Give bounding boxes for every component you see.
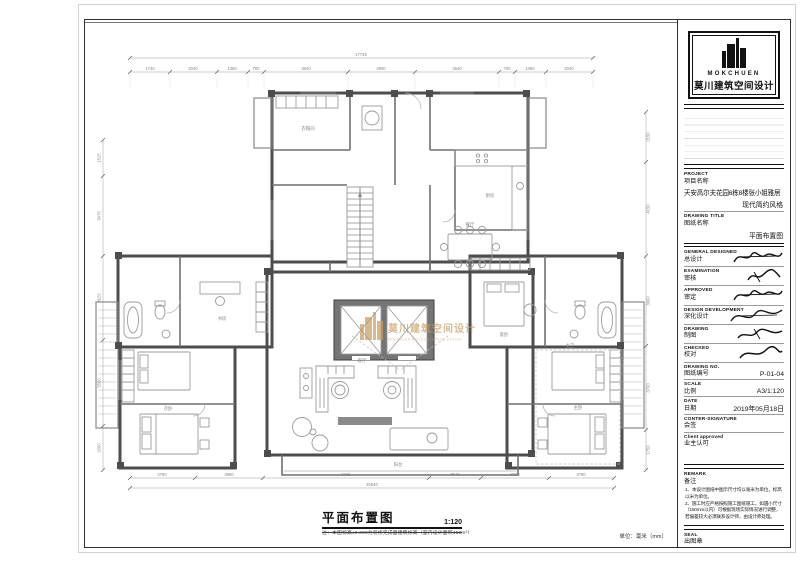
signature <box>730 286 784 304</box>
field-seal: SEAL 出图章 <box>684 531 784 547</box>
svg-text:厨房: 厨房 <box>486 192 495 199</box>
building-logo-icon <box>717 38 751 68</box>
svg-text:餐厅: 餐厅 <box>466 221 475 228</box>
svg-text:主卫: 主卫 <box>566 342 575 348</box>
svg-text:1360: 1360 <box>227 66 237 71</box>
svg-text:3780: 3780 <box>576 472 586 477</box>
svg-text:书房: 书房 <box>218 315 227 322</box>
room-labels: 客厅 餐厅 厨房 阳台 主卧 次卧 书房 客卧 主卫 衣帽间 <box>164 125 583 468</box>
plan-units: 单位：毫米（mm） <box>517 532 667 540</box>
title-block: MOKCHUEN 莫川建筑空间设计 PROJECT 项目名称 天安高尔夫花园6栋… <box>677 20 790 547</box>
plan-scale: 1:120 <box>444 519 462 526</box>
svg-text:主卧: 主卧 <box>574 404 583 411</box>
svg-text:2040: 2040 <box>188 66 198 71</box>
svg-text:1360: 1360 <box>525 66 535 71</box>
svg-text:3900: 3900 <box>646 296 651 306</box>
logo-inner: MOKCHUEN 莫川建筑空间设计 <box>692 35 776 95</box>
divider <box>684 525 784 530</box>
field-general-designed: GENERAL DESIGNED 总设计 <box>684 248 784 266</box>
svg-text:4150: 4150 <box>646 204 651 214</box>
field-drawing-no: DRAWING NO. 图纸编号 P-01-04 <box>684 362 784 379</box>
furniture <box>122 96 622 454</box>
drawing-no-value: P-01-04 <box>760 371 784 378</box>
remark-note-1: 1、本设计图纸中图示尺寸均以毫米为单位，标高以米为单位。 <box>685 487 784 500</box>
divider <box>684 104 784 109</box>
svg-text:1525: 1525 <box>97 153 102 163</box>
exterior-walls <box>118 93 622 468</box>
svg-text:3475: 3475 <box>97 211 102 221</box>
field-date: DATE 日期 2019年05月18日 <box>684 396 784 413</box>
field-counter-signature: CONTER-SIGNATURE 会签 <box>684 414 784 432</box>
field-project: PROJECT 项目名称 天安高尔夫花园6栋8楼张小姐雅居 现代简约风格 <box>684 170 784 211</box>
logo-box: MOKCHUEN 莫川建筑空间设计 <box>688 31 780 99</box>
field-examination: EXAMINATION 审核 <box>684 266 784 285</box>
signature <box>730 248 784 266</box>
field-checked: CHECKED 校对 <box>684 343 784 362</box>
drawing-title-value: 平面布置图 <box>684 228 784 241</box>
svg-text:2000: 2000 <box>97 443 102 453</box>
svg-text:3700: 3700 <box>646 383 651 393</box>
date-value: 2019年05月18日 <box>733 403 784 413</box>
field-design-development: DESIGN DEVELOPMENT 深化设计 <box>684 305 784 324</box>
drawing-sheet: 17725 1740 2040 1360 700 3640 2900 3640 … <box>0 0 800 565</box>
svg-text:阳台: 阳台 <box>394 461 403 468</box>
svg-text:3960: 3960 <box>510 472 520 477</box>
svg-text:1740: 1740 <box>145 66 155 71</box>
divider <box>684 243 784 248</box>
svg-text:3640: 3640 <box>301 66 311 71</box>
divider <box>684 164 784 169</box>
field-drawing: DRAWING 制图 <box>684 324 784 343</box>
svg-text:3045: 3045 <box>450 472 460 477</box>
logo-text-en: MOKCHUEN <box>708 71 761 77</box>
field-remark: REMARK 备注 1、本设计图纸中图示尺寸均以毫米为单位，标高以米为单位。 2… <box>684 470 784 524</box>
field-client-approved: Client approved 业主认可 <box>684 432 784 451</box>
svg-text:MOKCHUEN BUILDING SPACE DESIGN: MOKCHUEN BUILDING SPACE DESIGN <box>388 338 462 342</box>
svg-text:次卧: 次卧 <box>164 405 173 412</box>
signature <box>734 325 784 343</box>
logo-text-cn: 莫川建筑空间设计 <box>694 78 774 92</box>
signature <box>740 267 784 285</box>
ruled-lines <box>684 112 784 162</box>
svg-text:17725: 17725 <box>355 52 367 57</box>
svg-text:衣帽间: 衣帽间 <box>301 125 314 132</box>
plan-title: 平面布置图 <box>322 507 395 526</box>
floor-plan: 17725 1740 2040 1360 700 3640 2900 3640 … <box>85 20 674 544</box>
svg-text:3625: 3625 <box>97 293 102 303</box>
signature <box>734 344 784 362</box>
stairs <box>347 187 373 267</box>
svg-text:3640: 3640 <box>452 66 462 71</box>
remark-notes: 1、本设计图纸中图示尺寸均以毫米为单位，标高以米为单位。 2、施工时应严格按照施… <box>685 487 784 520</box>
svg-text:700: 700 <box>253 66 261 71</box>
svg-text:30540: 30540 <box>366 482 378 487</box>
svg-text:5550: 5550 <box>97 378 102 388</box>
svg-text:700: 700 <box>504 66 512 71</box>
svg-text:2150: 2150 <box>646 132 651 142</box>
svg-text:1750: 1750 <box>646 445 651 455</box>
remark-note-2: 2、施工时应严格按照施工图纸施工，如遇小尺寸（150mm以内）可根据现场实际情况… <box>685 501 784 520</box>
divider <box>684 464 784 469</box>
svg-text:2900: 2900 <box>376 66 386 71</box>
field-drawing-title: DRAWING TITLE 图纸名称 平面布置图 <box>684 211 784 241</box>
scale-value: A3/1:120 <box>757 388 784 395</box>
signature <box>728 306 784 324</box>
wall-piers <box>115 90 624 469</box>
field-approved: APPROVED 审定 <box>684 285 784 304</box>
svg-text:9635: 9635 <box>341 472 351 477</box>
svg-text:客卧: 客卧 <box>500 331 509 338</box>
field-scale: SCALE 比例 A3/1:120 <box>684 379 784 396</box>
svg-text:3960: 3960 <box>224 472 234 477</box>
svg-text:2040: 2040 <box>564 66 574 71</box>
project-name: 天安高尔夫花园6栋8楼张小姐雅居 <box>684 185 784 197</box>
svg-text:3780: 3780 <box>157 472 167 477</box>
svg-text:客厅: 客厅 <box>358 357 367 364</box>
svg-text:莫川建筑空间设计: 莫川建筑空间设计 <box>387 322 476 335</box>
spacer <box>684 451 784 463</box>
drawing-frame: 17725 1740 2040 1360 700 3640 2900 3640 … <box>84 19 791 548</box>
project-style: 现代简约风格 <box>684 197 784 210</box>
